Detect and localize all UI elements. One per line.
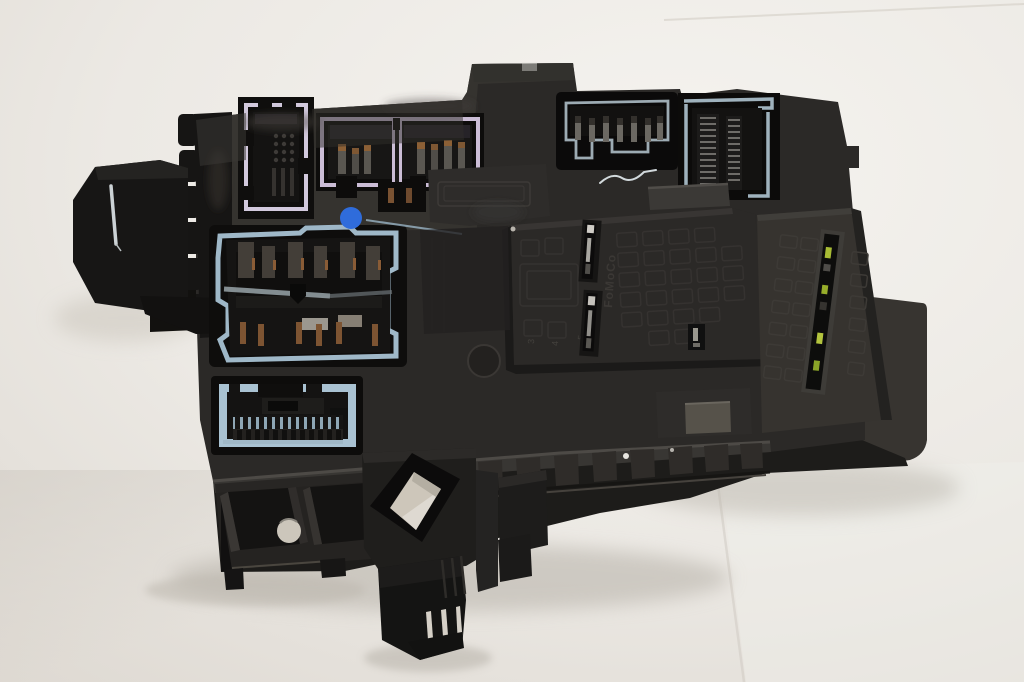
svg-text:3: 3 xyxy=(526,339,536,344)
svg-text:4: 4 xyxy=(550,341,560,346)
